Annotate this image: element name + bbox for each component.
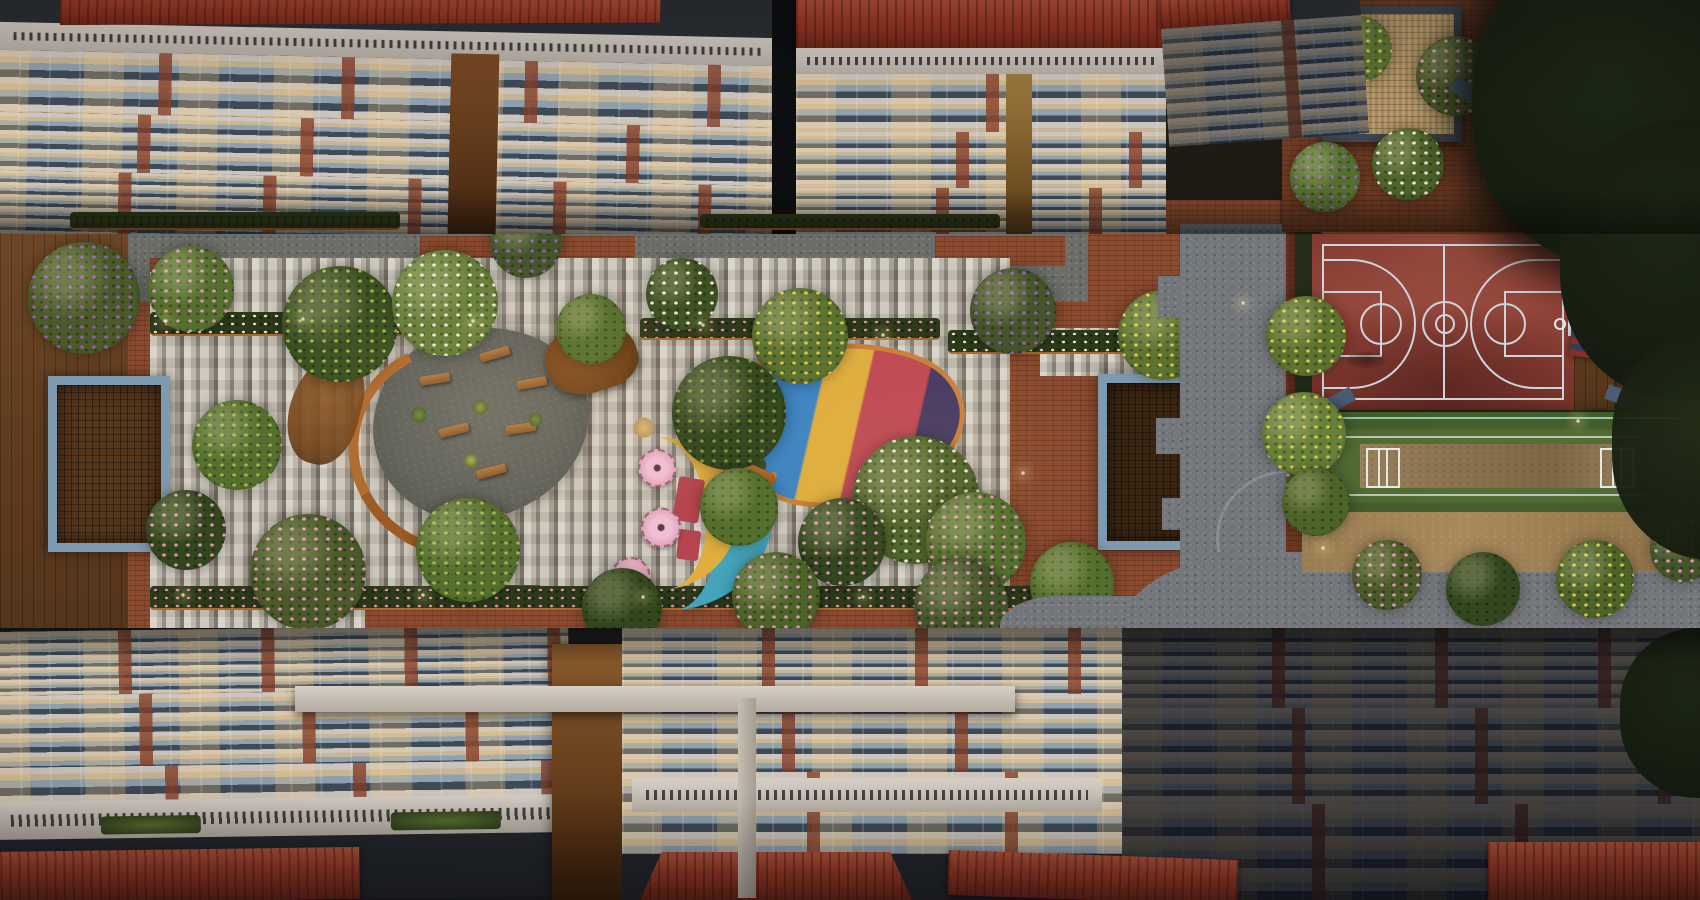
tile-roof-bottom-centre	[640, 852, 912, 900]
downlight	[1240, 300, 1246, 306]
downlight	[420, 592, 426, 598]
tree	[1446, 552, 1520, 626]
tower-top-right-sliver	[1159, 0, 1369, 147]
downlight	[470, 318, 476, 324]
tree	[148, 246, 234, 332]
tree	[1262, 392, 1346, 476]
downlight	[1020, 470, 1026, 476]
downlight	[880, 332, 886, 338]
tree	[1282, 468, 1350, 536]
tree	[556, 294, 626, 364]
tree	[700, 468, 778, 546]
louvred-parapet	[796, 48, 1166, 74]
downlight	[1575, 418, 1581, 424]
tree	[282, 266, 398, 382]
tree	[28, 242, 140, 354]
cobble-path-step	[1162, 498, 1184, 530]
courtyard-edge-shadow	[0, 628, 1700, 662]
downlight	[860, 594, 866, 600]
tree	[732, 552, 820, 640]
tree	[146, 490, 226, 570]
crease-markings-left	[1366, 448, 1400, 488]
louvred-parapet	[632, 778, 1102, 812]
centre-circle-inner	[1435, 314, 1455, 334]
tree	[970, 268, 1056, 354]
aerial-courtyard-rendering	[0, 0, 1700, 900]
tree	[672, 356, 786, 470]
tree	[1556, 540, 1634, 618]
pitch-tan-strip	[1360, 444, 1638, 488]
downlight	[300, 316, 306, 322]
cobble-path-step	[1158, 276, 1182, 318]
hoop-right	[1554, 318, 1566, 330]
balcony-floors	[1161, 15, 1369, 147]
sky-bridge-beam-vertical	[738, 698, 756, 898]
terrace-garden	[391, 811, 501, 831]
downlight	[640, 594, 646, 600]
timber-shaft-wall	[552, 644, 622, 900]
balcony-floors	[796, 132, 1166, 188]
terrace-garden	[101, 815, 201, 834]
downlight	[1320, 545, 1326, 551]
basketball-court	[1312, 234, 1574, 410]
downlight	[700, 322, 706, 328]
tree	[646, 258, 718, 330]
balcony-floors	[796, 74, 1166, 132]
tile-roof-bottom-left	[0, 847, 360, 900]
tree	[392, 250, 498, 356]
cobble-path-step	[1156, 418, 1184, 454]
balcony-floors	[1122, 708, 1700, 804]
tree	[250, 514, 366, 630]
tower-bottom-left	[0, 628, 572, 900]
tree	[1352, 540, 1422, 610]
downlight	[180, 592, 186, 598]
tree	[416, 498, 520, 602]
building-base-shadow	[0, 188, 1700, 234]
downlight	[162, 318, 168, 324]
sky-bridge-beam	[295, 686, 1015, 712]
top-buildings	[0, 0, 1700, 234]
court-logo	[1346, 352, 1386, 368]
tree	[1266, 296, 1346, 376]
tile-roof-bottom-right	[1488, 842, 1700, 900]
tree	[192, 400, 282, 490]
tile-roof-top-centre	[796, 0, 1166, 48]
bottom-buildings	[0, 628, 1700, 900]
